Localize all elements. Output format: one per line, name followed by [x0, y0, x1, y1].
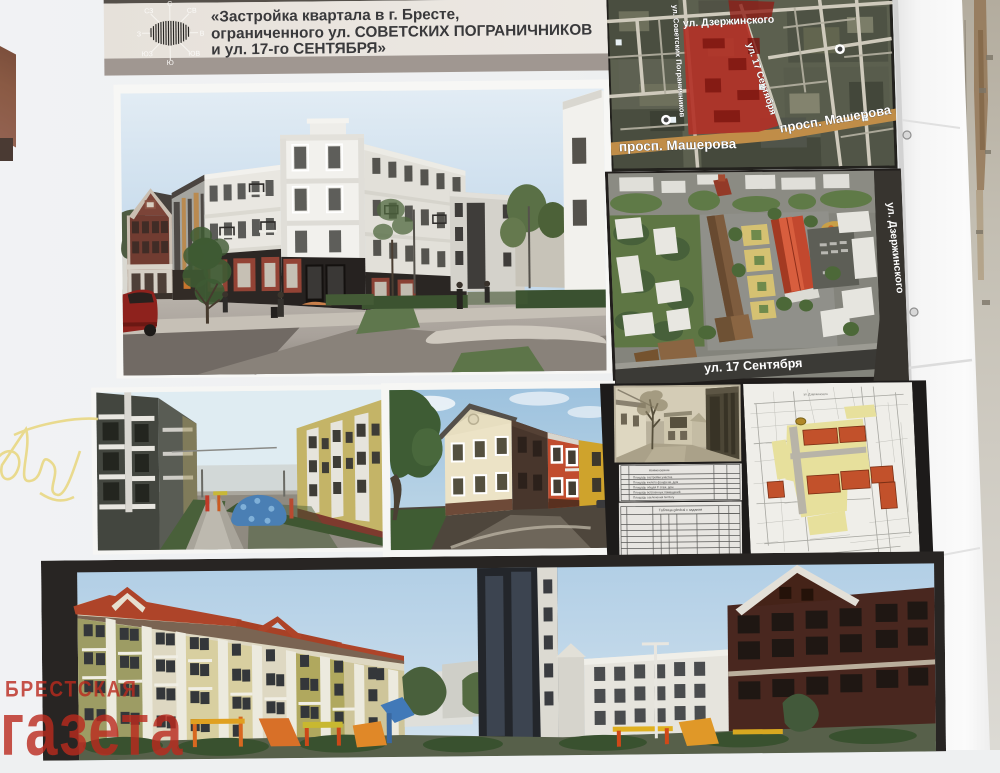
svg-text:СЗ: СЗ	[144, 8, 153, 15]
svg-text:Площадь застройки участка: Площадь застройки участка	[633, 475, 673, 479]
svg-text:Площадь жилого фонда км. дом: Площадь жилого фонда км. дом	[633, 480, 678, 484]
svg-text:Ю: Ю	[167, 60, 174, 65]
svg-text:Таблица général с задания: Таблица général с задания	[659, 508, 703, 512]
svg-text:С: С	[167, 1, 172, 8]
svg-text:Наименование: Наименование	[649, 468, 670, 472]
svg-text:СВ: СВ	[187, 8, 197, 15]
svg-text:ЮЗ: ЮЗ	[142, 51, 153, 58]
svg-text:Площадь общая Р этаж. дом: Площадь общая Р этаж. дом	[633, 485, 673, 489]
svg-text:ул. Дзержинского: ул. Дзержинского	[803, 392, 828, 396]
svg-text:Площадь встроенных помещений: Площадь встроенных помещений	[633, 490, 681, 494]
svg-text:В: В	[200, 31, 205, 38]
svg-text:ЮВ: ЮВ	[188, 51, 200, 58]
svg-text:З: З	[137, 31, 141, 38]
svg-text:Площадь озеленения territory: Площадь озеленения territory	[633, 495, 675, 499]
